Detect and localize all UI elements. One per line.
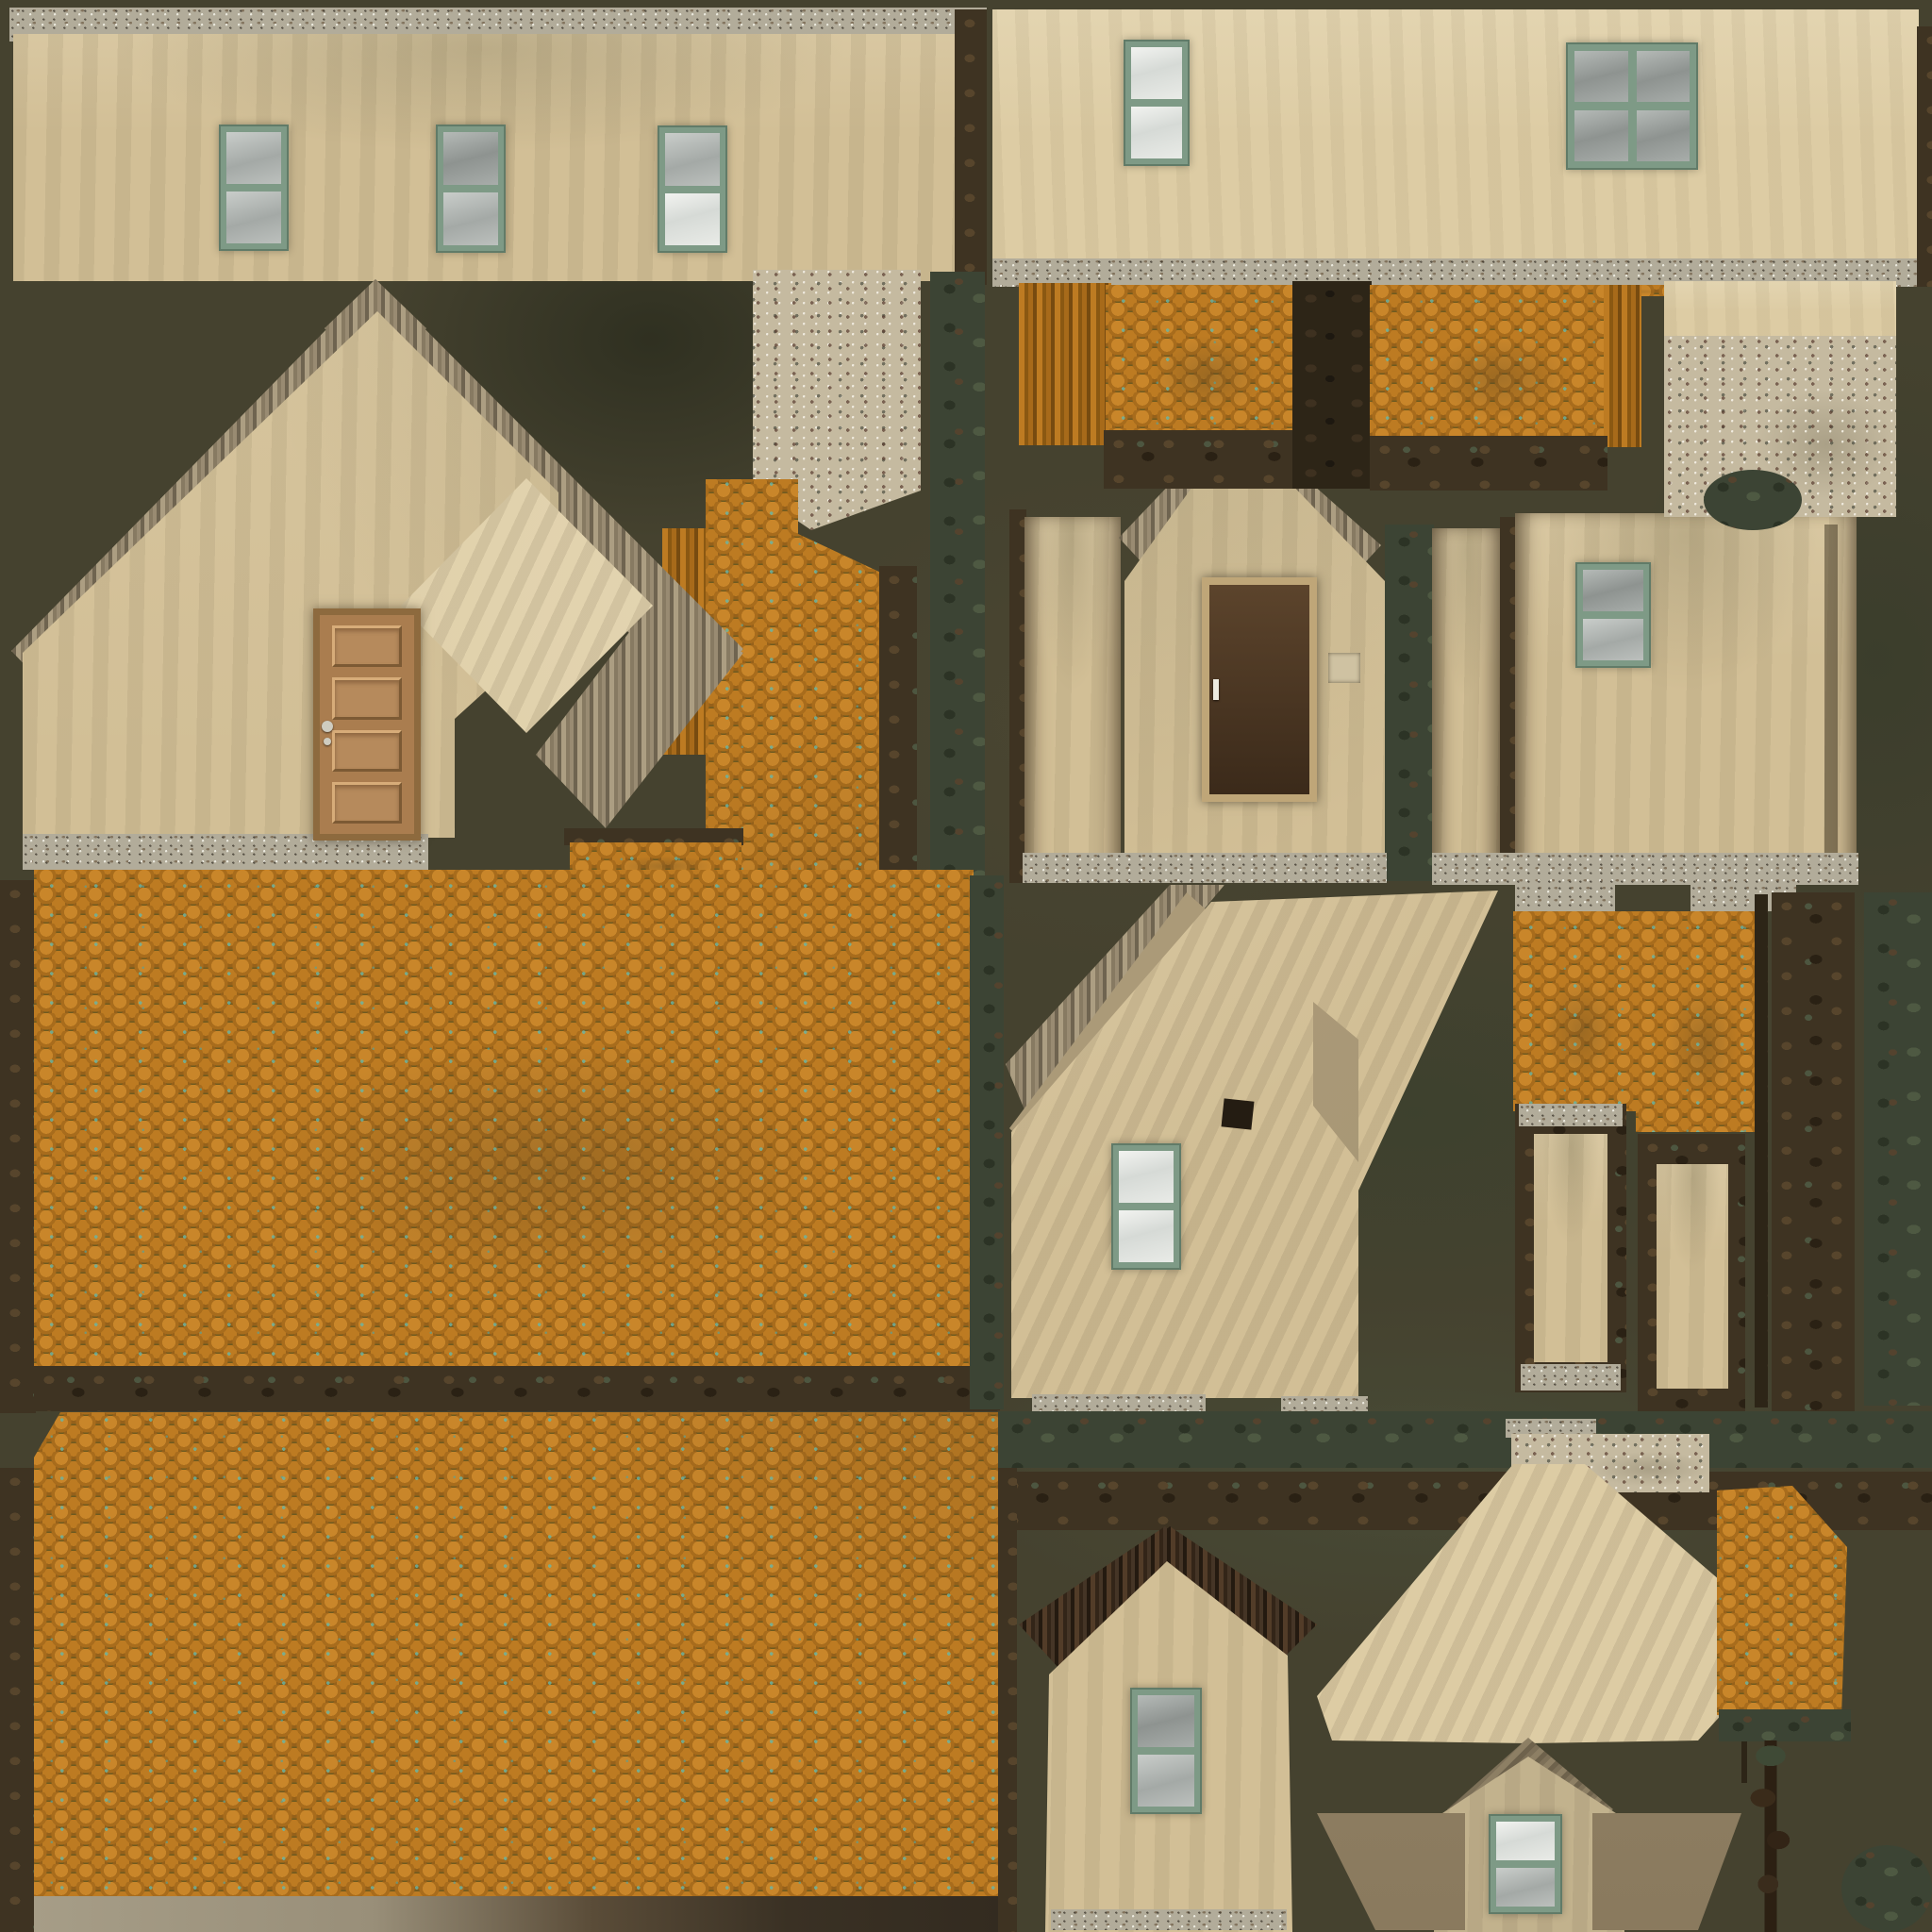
dormerJ-gap [1292,281,1372,489]
window-l1-pane-top [1119,1151,1174,1203]
wallsI-seam-4 [1824,525,1838,881]
window-i1 [1575,562,1651,668]
gableI-switch-box [1328,653,1360,683]
roof1-left-trim [0,880,36,1413]
window-i1-pane-bottom [1583,619,1643,660]
window-a3 [658,125,727,253]
pillarM-cap-stone-1 [1515,885,1615,911]
wallB-right-trim [1917,26,1932,287]
trimN-column-2 [1864,892,1932,1406]
dormerJ-shingles-1 [1106,285,1292,436]
speckle-patch-right-top [1664,281,1896,341]
window-b1-pane-top [1131,47,1182,99]
trimN-thin [1755,894,1768,1407]
shingle-column-border [879,566,917,883]
pillarM-shingles-right [1636,911,1758,1132]
wallsI-seam-2 [1385,525,1434,881]
wallsI-stone-footing-2 [1432,853,1858,885]
roof1-bottom-band [34,1366,1000,1411]
window-i1-pane-top [1583,570,1643,611]
roof1-right-trim [970,875,1004,1409]
window-a3-pane-top [665,133,720,186]
dormerJ-bleed-right [1604,285,1641,447]
window-b1-pane-bottom [1131,107,1182,158]
window-ob-pane-bottom [1496,1868,1555,1907]
pillarM-shingles-left [1513,911,1638,1111]
window-b1 [1124,40,1190,166]
wallI-narrow-2 [1432,528,1500,881]
window-a1-pane-bottom [226,192,281,243]
window-l1-pane-bottom [1119,1210,1174,1262]
window-a3-pane-bottom [665,193,720,246]
trimN-column-1 [1772,892,1855,1417]
window-b2-pane-3 [1574,110,1628,161]
wallA-right-trim [955,9,987,285]
window-oa-pane-bottom [1138,1755,1194,1807]
speckle-patch-blob [1704,470,1802,530]
window-oa [1130,1688,1202,1814]
window-ob-pane-top [1496,1822,1555,1860]
window-a1 [219,125,289,251]
window-b2-pane-4 [1637,110,1690,161]
door-panel [332,677,402,719]
roof2-left-trim [0,1468,34,1932]
dormerJ-bleed-left [1019,283,1111,445]
wallI-narrow-1 [1024,517,1121,881]
door-panel [332,625,402,667]
gableF-door [313,608,421,841]
pillarM-2-core [1657,1164,1728,1389]
dormerJ-shingles-2 [1370,285,1606,441]
door-handle-icon [1213,679,1219,700]
wallI-wide [1515,513,1857,883]
branch-trim [1745,1740,1796,1932]
window-a2 [436,125,506,253]
bandO-upper [998,1411,1932,1468]
window-b2-pane-1 [1574,51,1628,102]
door-keyhole-icon [324,738,331,745]
shingleO-under [1719,1709,1851,1741]
window-oa-pane-top [1138,1695,1194,1747]
gableOA-stone-footing [1051,1909,1287,1930]
pillarM-1-base [1521,1364,1621,1391]
roof1-shingles [34,870,974,1368]
window-l1 [1111,1143,1181,1270]
roof2-bottom-band [34,1896,1000,1932]
pillarM-1-core [1534,1134,1607,1362]
dormerJ-under-1 [1104,430,1296,489]
corner-blob [1841,1845,1932,1932]
window-b2 [1566,42,1698,170]
door-panel [332,730,402,772]
window-a2-pane-top [443,132,498,185]
ridge-strip [930,272,985,894]
dormerJ-under-2 [1370,436,1607,491]
window-b2-pane-2 [1637,51,1690,102]
window-ob [1489,1814,1562,1914]
pillarM-1-cap [1519,1104,1623,1126]
eaveL-notch [1222,1098,1255,1129]
door-knob-icon [322,721,333,732]
window-a2-pane-bottom [443,192,498,245]
gableI-door [1202,577,1317,802]
wallsI-stone-footing-1 [1023,853,1387,883]
texture-atlas-canvas [0,0,1932,1932]
window-a1-pane-top [226,132,281,184]
gableOA-left-strip [998,1468,1017,1932]
door-panel [332,782,402,824]
